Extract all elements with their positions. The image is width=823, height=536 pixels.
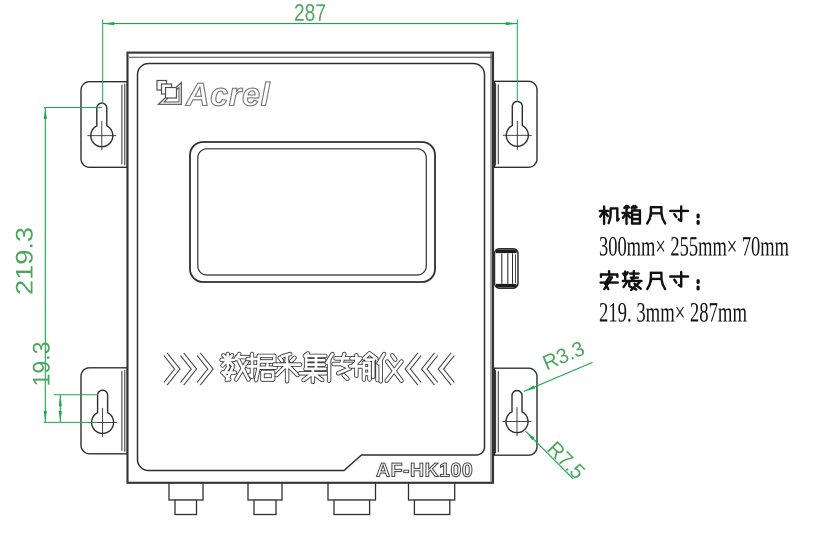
svg-text:19.3: 19.3 <box>29 342 56 387</box>
svg-text:219.3: 219.3 <box>12 227 39 295</box>
svg-text:287: 287 <box>294 0 326 27</box>
svg-text:Acrel: Acrel <box>185 76 271 112</box>
svg-text:300mm× 255mm× 70mm: 300mm× 255mm× 70mm <box>599 231 789 262</box>
svg-text:AF-HK100: AF-HK100 <box>376 459 473 481</box>
svg-text:219. 3mm× 287mm: 219. 3mm× 287mm <box>599 297 747 328</box>
